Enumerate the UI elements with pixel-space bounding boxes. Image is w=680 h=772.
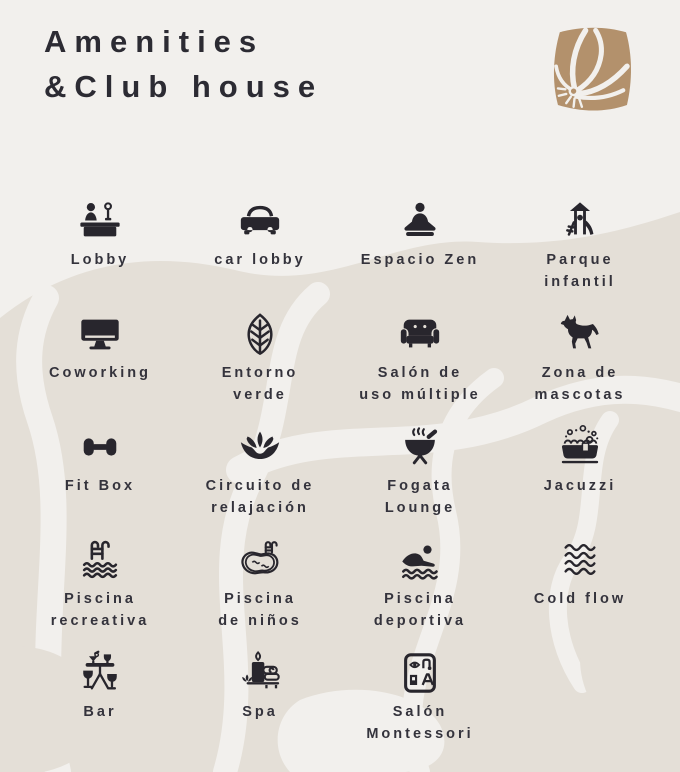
amenity-label: SalónMontessori [366, 702, 473, 746]
bar-table-icon [77, 646, 123, 696]
amenity-item: Circuito derelajación [180, 420, 340, 533]
amenity-label: Lobby [71, 250, 130, 272]
amenity-item: Spa [180, 646, 340, 759]
amenity-label: Entornoverde [222, 363, 299, 407]
amenity-item: Entornoverde [180, 307, 340, 420]
amenity-label: Jacuzzi [544, 476, 617, 498]
amenity-label: FogataLounge [385, 476, 455, 520]
amenity-label: Parqueinfantil [544, 250, 616, 294]
amenity-item: Zona demascotas [500, 307, 660, 420]
amenity-label: Espacio Zen [361, 250, 479, 272]
meditation-icon [397, 194, 443, 244]
amenity-label: Fit Box [65, 476, 135, 498]
amenity-label: Zona demascotas [535, 363, 626, 407]
amenity-item: Coworking [20, 307, 180, 420]
amenity-label: car lobby [214, 250, 305, 272]
pool-ladder-icon [77, 533, 123, 583]
amenity-item: car lobby [180, 194, 340, 307]
monitor-icon [77, 307, 123, 357]
leaf-icon [237, 307, 283, 357]
amenity-item: Espacio Zen [340, 194, 500, 307]
amenity-item: Parqueinfantil [500, 194, 660, 307]
kids-pool-icon [237, 533, 283, 583]
amenity-label: Piscinarecreativa [51, 589, 150, 633]
montessori-icon [397, 646, 443, 696]
dog-icon [557, 307, 603, 357]
sofa-icon [397, 307, 443, 357]
page-title-line2: &Club house [44, 65, 323, 110]
amenity-item: Piscinadeportiva [340, 533, 500, 646]
playground-icon [557, 194, 603, 244]
amenity-label: Cold flow [534, 589, 626, 611]
hot-tub-icon [557, 420, 603, 470]
swimmer-icon [397, 533, 443, 583]
amenity-item: Fit Box [20, 420, 180, 533]
amenity-item: Cold flow [500, 533, 660, 646]
amenity-item: Salón deuso múltiple [340, 307, 500, 420]
amenity-item: Jacuzzi [500, 420, 660, 533]
amenity-item: SalónMontessori [340, 646, 500, 759]
amenity-label: Piscinadeportiva [374, 589, 466, 633]
lotus-icon [237, 420, 283, 470]
amenity-label: Piscinade niños [218, 589, 302, 633]
amenity-label: Circuito derelajación [206, 476, 315, 520]
car-icon [237, 194, 283, 244]
amenity-item: Lobby [20, 194, 180, 307]
amenity-item: FogataLounge [340, 420, 500, 533]
grill-icon [397, 420, 443, 470]
waves-icon [557, 533, 603, 583]
amenity-label: Coworking [49, 363, 151, 385]
amenity-label: Salón deuso múltiple [359, 363, 480, 407]
amenity-label: Bar [83, 702, 116, 724]
amenity-label: Spa [242, 702, 278, 724]
page-title: Amenities &Club house [44, 20, 323, 110]
reception-desk-icon [77, 194, 123, 244]
amenity-item: Piscinade niños [180, 533, 340, 646]
flower-logo [546, 22, 638, 118]
amenity-item: Bar [20, 646, 180, 759]
spa-candle-icon [237, 646, 283, 696]
page-header: Amenities &Club house [44, 20, 323, 110]
amenity-item: Piscinarecreativa [20, 533, 180, 646]
page-title-line1: Amenities [44, 20, 323, 65]
dumbbell-icon [77, 420, 123, 470]
amenities-grid: Lobby car lobby Espacio Zen Parqueinfant… [20, 194, 660, 759]
